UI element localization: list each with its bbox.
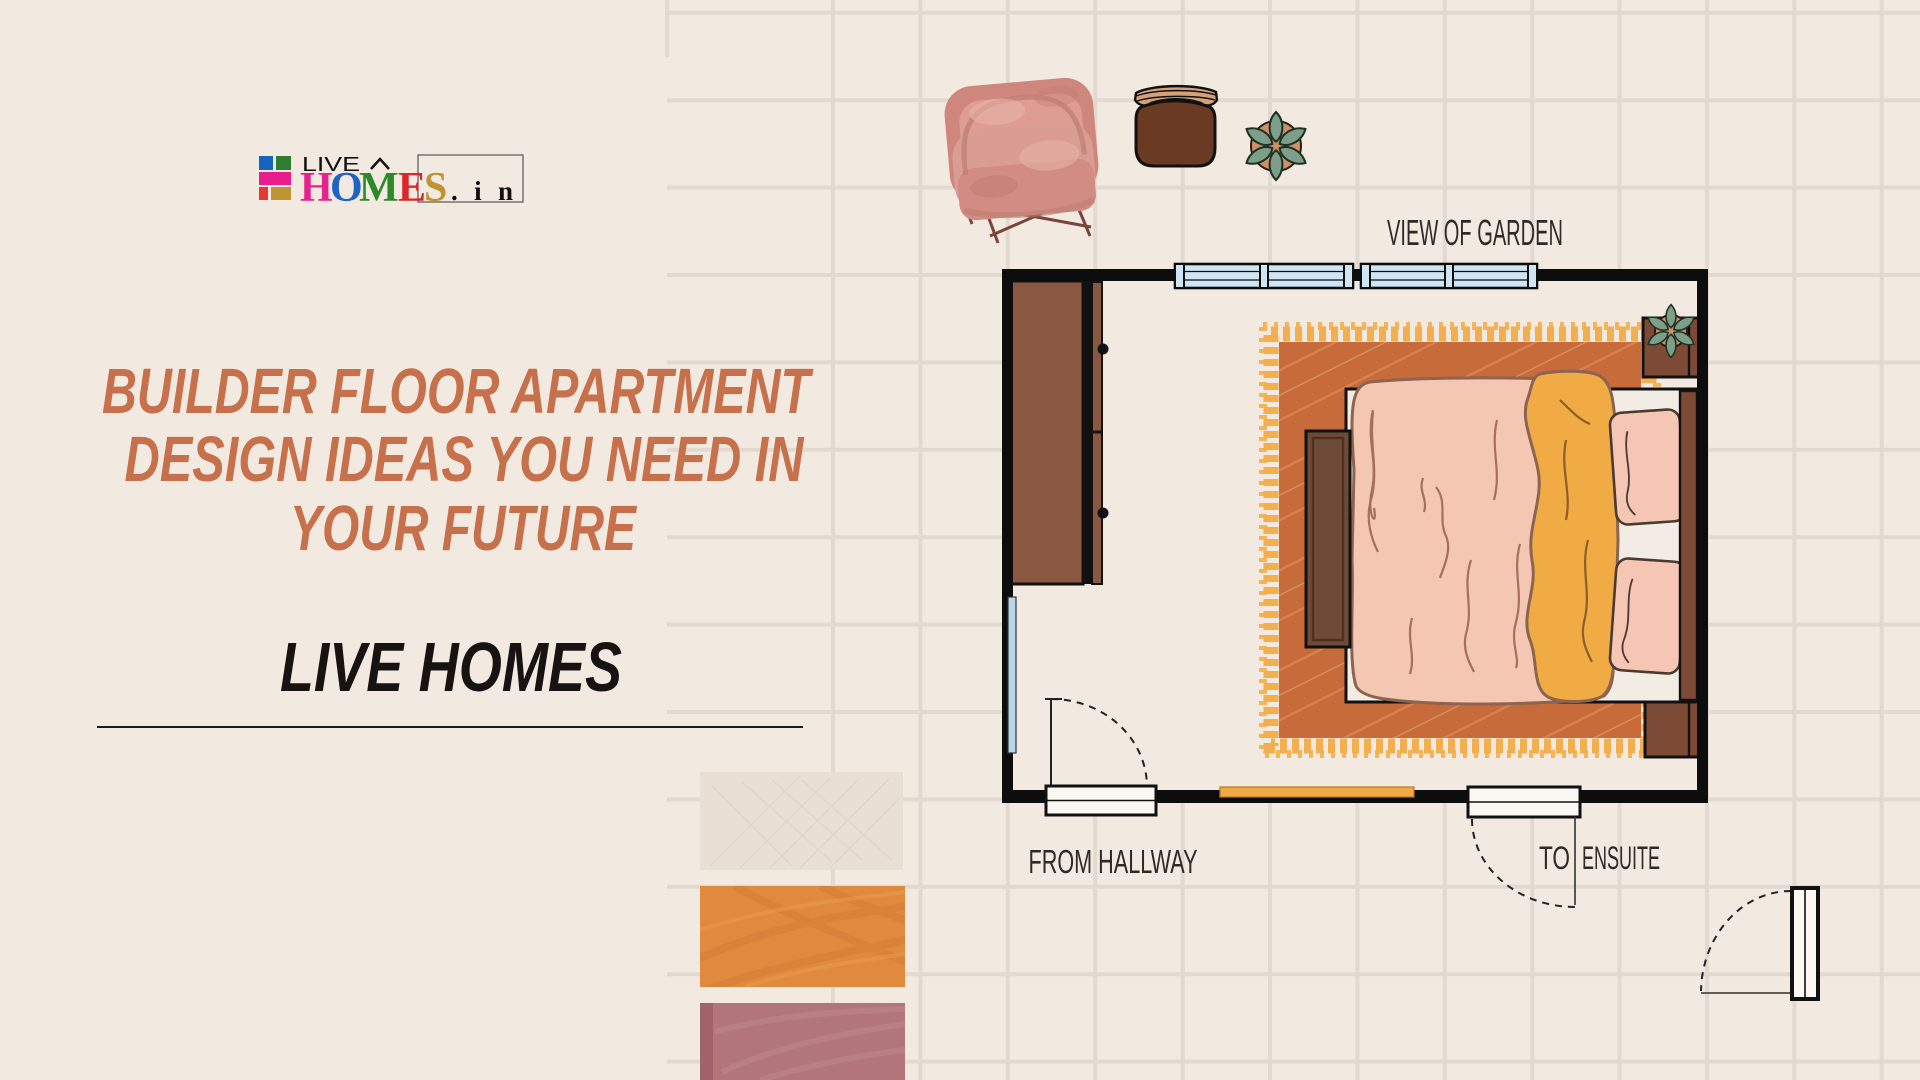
svg-text:YOUR FUTURE: YOUR FUTURE [290,492,638,564]
svg-text:VIEW OF GARDEN: VIEW OF GARDEN [1387,212,1563,253]
svg-text:BUILDER FLOOR APARTMENT: BUILDER FLOOR APARTMENT [102,355,814,427]
svg-text:LIVE HOMES: LIVE HOMES [280,628,622,706]
svg-text:ENSUITE: ENSUITE [1582,840,1660,876]
svg-text:S: S [424,165,447,211]
svg-text:FROM HALLWAY: FROM HALLWAY [1029,843,1198,880]
svg-text:M: M [359,165,399,211]
svg-text:O: O [330,165,363,211]
svg-text:DESIGN IDEAS YOU NEED IN: DESIGN IDEAS YOU NEED IN [125,423,805,495]
svg-text:TO: TO [1539,840,1570,876]
svg-text:E: E [398,165,426,211]
svg-text:H: H [300,165,333,211]
